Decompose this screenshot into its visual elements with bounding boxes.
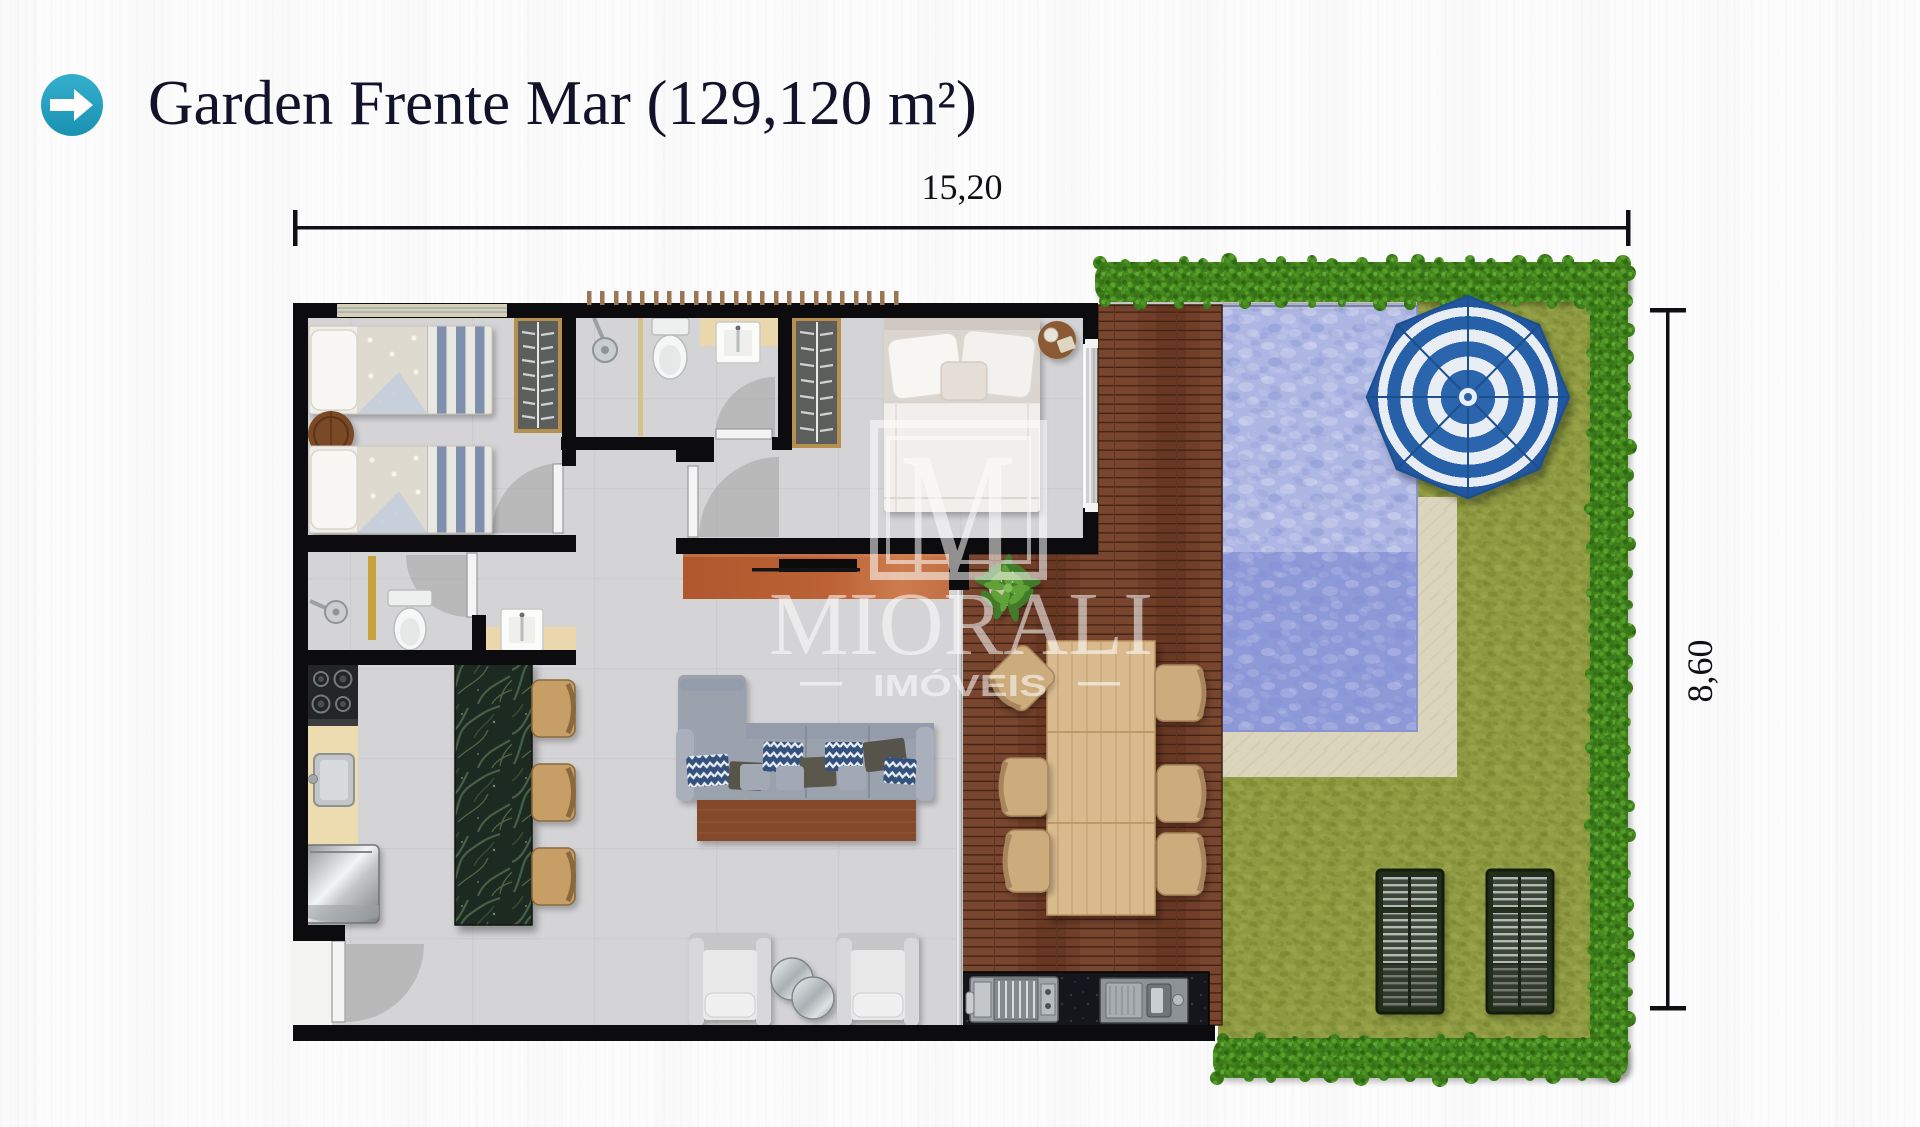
svg-text:IMÓVEIS: IMÓVEIS xyxy=(873,667,1047,703)
svg-text:8,60: 8,60 xyxy=(1680,640,1720,703)
svg-text:MIORALI: MIORALI xyxy=(769,575,1153,674)
svg-text:Garden Frente Mar (129,120 m²): Garden Frente Mar (129,120 m²) xyxy=(148,68,977,138)
svg-text:15,20: 15,20 xyxy=(922,167,1003,207)
